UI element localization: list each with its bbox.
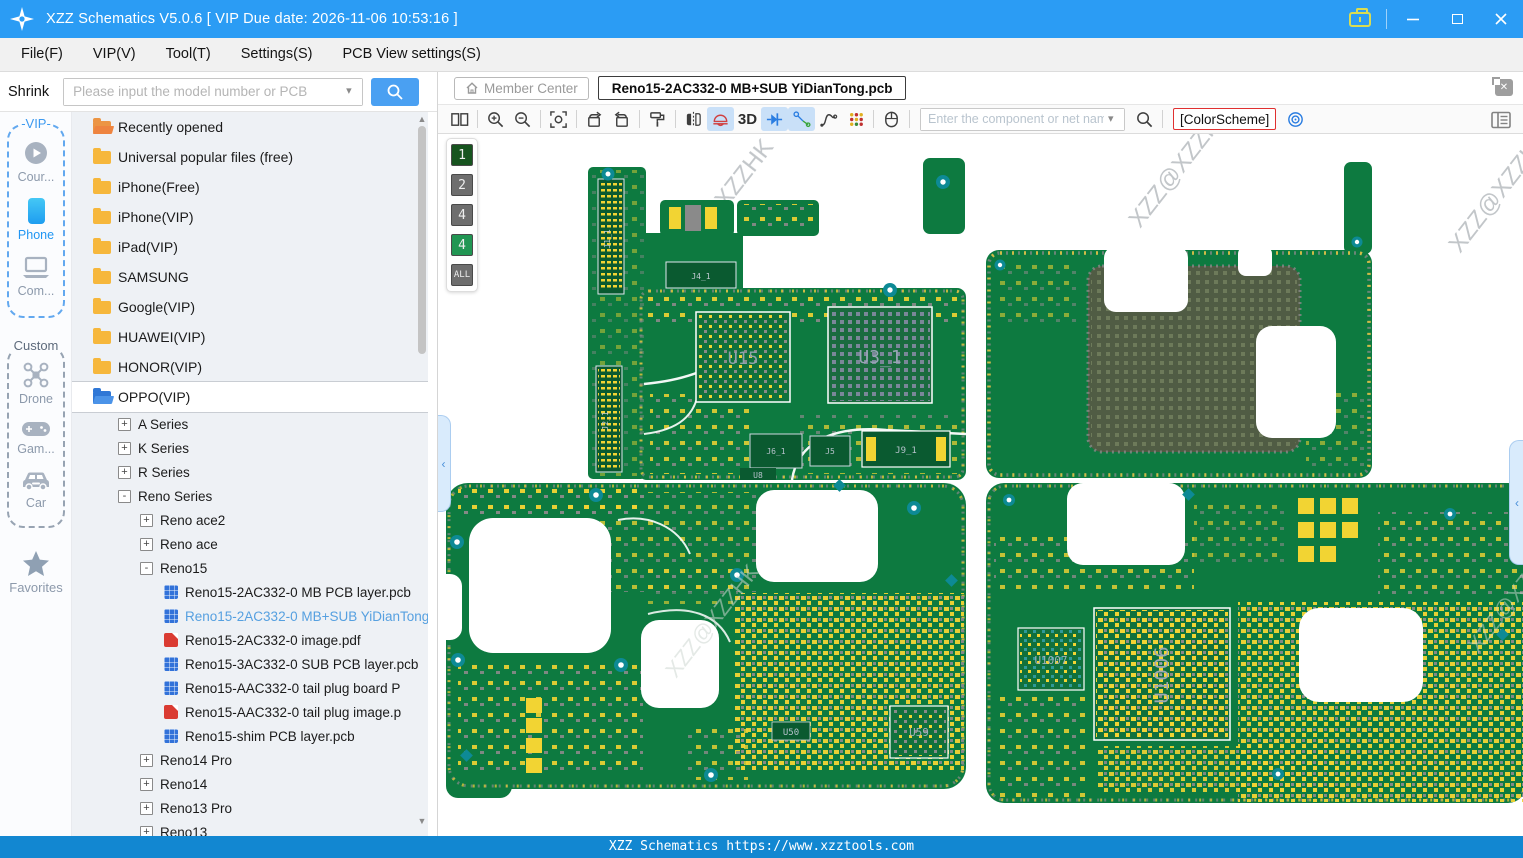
folder-icon	[93, 211, 111, 224]
tree-item-reno14[interactable]: + Reno14	[72, 772, 428, 796]
scroll-up-icon[interactable]: ▲	[417, 114, 427, 124]
bga-u1007: U1007	[1018, 628, 1084, 690]
eye-visibility-button[interactable]	[1282, 107, 1309, 131]
folder-icon	[93, 331, 111, 344]
svg-text:J2_1: J2_1	[601, 411, 610, 430]
restore-button[interactable]	[1435, 0, 1479, 38]
expand-icon[interactable]: +	[140, 538, 153, 551]
paint-roller-button[interactable]	[644, 107, 671, 131]
fit-screen-button[interactable]	[545, 107, 572, 131]
svg-text:XZZ@XZZHK: XZZ@XZZHK	[1123, 134, 1236, 233]
tree-item-a-series[interactable]: + A Series	[72, 412, 428, 436]
custom-group-box: Custom Drone Gam...	[7, 346, 65, 528]
laptop-icon	[22, 256, 50, 280]
menu-tool[interactable]: Tool(T)	[151, 38, 226, 71]
menu-pcb-view-settings[interactable]: PCB View settings(S)	[327, 38, 495, 71]
dot-matrix-button[interactable]	[842, 107, 869, 131]
pcb-toolbar: 3D ▾ [ColorScheme]	[438, 104, 1523, 134]
model-search-field: ▾	[63, 78, 363, 106]
tree-item-reno14-pro[interactable]: + Reno14 Pro	[72, 748, 428, 772]
curve-tool-button[interactable]	[815, 107, 842, 131]
tree-file-reno15-tail-plug-image[interactable]: Reno15-AAC332-0 tail plug image.p	[72, 700, 428, 724]
pcb-canvas-area[interactable]: 1 2 4 4 ALL	[438, 134, 1523, 836]
expand-icon[interactable]: +	[118, 442, 131, 455]
status-bar: XZZ Schematics https://www.xzztools.com	[0, 836, 1523, 858]
3d-view-button[interactable]: 3D	[734, 107, 761, 131]
folder-icon	[93, 361, 111, 374]
svg-text:U1007: U1007	[1034, 654, 1067, 667]
tree-item-reno13-pro[interactable]: + Reno13 Pro	[72, 796, 428, 820]
star-icon	[21, 550, 51, 578]
connector-j4-1: J4_1	[666, 262, 736, 288]
tree-item-google-vip[interactable]: Google(VIP)	[72, 292, 428, 322]
folder-open-icon	[93, 121, 111, 134]
tree-item-k-series[interactable]: + K Series	[72, 436, 428, 460]
tree-item-reno-ace[interactable]: + Reno ace	[72, 532, 428, 556]
collapse-icon[interactable]: -	[118, 490, 131, 503]
menu-settings[interactable]: Settings(S)	[226, 38, 328, 71]
connector-j5: J5	[810, 436, 850, 466]
search-row: Shrink ▾	[0, 72, 437, 112]
collapse-right-handle[interactable]: ‹	[1509, 440, 1523, 565]
silkscreen-lamp-button[interactable]	[707, 107, 734, 131]
folder-icon	[93, 271, 111, 284]
folder-icon	[93, 151, 111, 164]
tree-item-recently-opened[interactable]: Recently opened	[72, 112, 428, 142]
svg-text:U59: U59	[909, 726, 929, 739]
car-icon	[21, 470, 51, 492]
tree-file-reno15-sub-pcb[interactable]: Reno15-3AC332-0 SUB PCB layer.pcb	[72, 652, 428, 676]
net-search-button[interactable]	[1131, 107, 1158, 131]
zoom-out-button[interactable]	[509, 107, 536, 131]
shrink-button[interactable]: Shrink	[8, 84, 49, 100]
search-button[interactable]	[371, 78, 419, 106]
close-button[interactable]	[1479, 0, 1523, 38]
tree-item-universal[interactable]: Universal popular files (free)	[72, 142, 428, 172]
pcb-file-icon	[164, 609, 178, 623]
bga-u59: U59	[890, 706, 948, 758]
tree-item-reno15[interactable]: - Reno15	[72, 556, 428, 580]
expand-icon[interactable]: +	[140, 778, 153, 791]
vip-group-box: -VIP- Cour... Phone Com...	[7, 124, 65, 318]
tab-row: Member Center Reno15-2AC332-0 MB+SUB YiD…	[438, 72, 1523, 104]
expand-icon[interactable]: +	[118, 418, 131, 431]
rotate-left-button[interactable]	[581, 107, 608, 131]
chevron-down-icon[interactable]: ▾	[1108, 115, 1117, 124]
pcb-drawing[interactable]: XZZ@XZZHK XZZ@XZZHK XZZ@XZZHK XZZ@XZZHK	[438, 134, 1523, 836]
net-search-input[interactable]	[921, 109, 1124, 130]
pdf-file-icon	[164, 705, 178, 719]
rail-item-favorites[interactable]: Favorites	[0, 550, 72, 595]
layer-panel-toggle-icon[interactable]	[1491, 111, 1511, 129]
layer-button-all[interactable]: ALL	[451, 264, 473, 286]
layer-button-4[interactable]: 4	[451, 234, 473, 256]
tree-item-oppo-vip[interactable]: OPPO(VIP)	[72, 382, 428, 412]
tree-item-reno13[interactable]: + Reno13	[72, 820, 428, 836]
model-search-input[interactable]	[64, 79, 362, 105]
layer-selector: 1 2 4 4 ALL	[446, 138, 478, 292]
bga-u3-1: U3_1	[828, 307, 932, 403]
folder-open-icon	[93, 391, 111, 404]
window-title: XZZ Schematics V5.0.6 [ VIP Due date: 20…	[46, 11, 458, 27]
svg-text:J4_1: J4_1	[691, 272, 710, 281]
rotate-right-button[interactable]	[608, 107, 635, 131]
titlebar-separator	[1386, 9, 1387, 29]
rail-item-course[interactable]: Cour...	[9, 140, 63, 184]
file-tree: Recently opened Universal popular files …	[72, 112, 428, 836]
svg-text:U50: U50	[783, 728, 799, 738]
folder-icon	[93, 241, 111, 254]
pdf-file-icon	[164, 633, 178, 647]
svg-text:U3_1: U3_1	[858, 347, 901, 368]
layer-button-3[interactable]: 4	[451, 204, 473, 226]
pcb-board-top-right[interactable]	[986, 162, 1372, 478]
pcb-board-bottom-right[interactable]: U1007 U1006 XZZ@XZZHK	[986, 483, 1523, 803]
tree-file-reno15-image-pdf[interactable]: Reno15-2AC332-0 image.pdf	[72, 628, 428, 652]
menu-file[interactable]: File(F)	[6, 38, 78, 71]
svg-text:XZZ@XZZHK: XZZ@XZZHK	[1443, 134, 1523, 258]
zoom-in-button[interactable]	[482, 107, 509, 131]
menu-vip[interactable]: VIP(V)	[78, 38, 151, 71]
measure-button[interactable]	[788, 107, 815, 131]
tree-item-r-series[interactable]: + R Series	[72, 460, 428, 484]
search-icon	[386, 83, 404, 101]
pcb-board-top-left[interactable]: J1_1 J2_1 J4_1 U15 U3_1	[588, 158, 966, 480]
bga-u1006: U1006	[1094, 608, 1230, 740]
tree-scrollbar[interactable]: ▲ ▼	[417, 114, 427, 834]
drone-icon	[23, 362, 49, 388]
net-search-field: ▾	[920, 108, 1125, 131]
member-center-button[interactable]: Member Center	[454, 77, 589, 100]
vip-group-label: -VIP-	[19, 116, 53, 131]
layer-button-2[interactable]: 2	[451, 174, 473, 196]
title-bar: XZZ Schematics V5.0.6 [ VIP Due date: 20…	[0, 0, 1523, 38]
diode-mode-button[interactable]	[761, 107, 788, 131]
expand-icon[interactable]: +	[140, 826, 153, 837]
svg-text:J9_1: J9_1	[895, 446, 917, 456]
rail-item-phone[interactable]: Phone	[9, 198, 63, 242]
menu-bar: File(F) VIP(V) Tool(T) Settings(S) PCB V…	[0, 38, 1523, 72]
pcb-board-bottom-left[interactable]: U50 U59	[438, 479, 966, 798]
tree-file-reno15-shim[interactable]: Reno15-shim PCB layer.pcb	[72, 724, 428, 748]
scroll-down-icon[interactable]: ▼	[417, 816, 427, 826]
scrollbar-thumb[interactable]	[418, 126, 426, 354]
tree-item-samsung[interactable]: SAMSUNG	[72, 262, 428, 292]
play-circle-icon	[23, 140, 49, 166]
tree-item-reno-series[interactable]: - Reno Series	[72, 484, 428, 508]
expand-icon[interactable]: +	[140, 754, 153, 767]
flip-horizontal-button[interactable]	[680, 107, 707, 131]
status-text: XZZ Schematics https://www.xzztools.com	[609, 839, 914, 854]
pcb-file-icon	[164, 729, 178, 743]
minimize-button[interactable]	[1391, 0, 1435, 38]
tree-item-iphone-free[interactable]: iPhone(Free)	[72, 172, 428, 202]
home-icon	[465, 81, 479, 95]
rail-item-car[interactable]: Car	[9, 470, 63, 510]
custom-group-label: Custom	[12, 338, 61, 353]
split-view-button[interactable]	[446, 107, 473, 131]
component-u50: U50	[772, 722, 810, 740]
chevron-down-icon[interactable]: ▾	[346, 87, 355, 96]
bga-u15: U15	[696, 312, 790, 402]
tree-item-reno-ace2[interactable]: + Reno ace2	[72, 508, 428, 532]
color-scheme-button[interactable]: [ColorScheme]	[1173, 108, 1276, 130]
pcb-file-icon	[164, 681, 178, 695]
tree-item-honor-vip[interactable]: HONOR(VIP)	[72, 352, 428, 382]
rail-item-game[interactable]: Gam...	[9, 420, 63, 456]
connector-j9-1: J9_1	[862, 431, 950, 467]
rail-item-drone[interactable]: Drone	[9, 362, 63, 406]
tree-file-reno15-mb-sub-active[interactable]: Reno15-2AC332-0 MB+SUB YiDianTong.pcb	[72, 604, 428, 628]
svg-text:U8: U8	[753, 471, 763, 480]
svg-text:J1_1: J1_1	[603, 229, 612, 248]
connector-j1-1: J1_1	[598, 179, 624, 294]
pcb-file-icon	[164, 657, 178, 671]
folder-icon	[93, 301, 111, 314]
folder-icon	[93, 181, 111, 194]
tree-item-huawei-vip[interactable]: HUAWEI(VIP)	[72, 322, 428, 352]
collapse-icon[interactable]: -	[140, 562, 153, 575]
close-tab-icon[interactable]: ✕	[1495, 79, 1513, 96]
svg-text:U1006: U1006	[1151, 646, 1173, 703]
expand-icon[interactable]: +	[140, 802, 153, 815]
connector-j2-1: J2_1	[596, 366, 622, 472]
svg-text:J5: J5	[825, 447, 835, 456]
svg-text:J6_1: J6_1	[766, 447, 785, 456]
rail-item-computer[interactable]: Com...	[9, 256, 63, 298]
category-rail: -VIP- Cour... Phone Com... Custom	[0, 112, 72, 836]
tree-file-reno15-mb-pcb[interactable]: Reno15-2AC332-0 MB PCB layer.pcb	[72, 580, 428, 604]
layer-button-1[interactable]: 1	[451, 144, 473, 166]
tree-item-ipad-vip[interactable]: iPad(VIP)	[72, 232, 428, 262]
expand-icon[interactable]: +	[140, 514, 153, 527]
app-logo-icon	[10, 7, 34, 31]
tree-file-reno15-tail-plug-board[interactable]: Reno15-AAC332-0 tail plug board P	[72, 676, 428, 700]
collapse-tree-handle[interactable]: ‹	[438, 415, 451, 512]
phone-icon	[28, 198, 45, 224]
expand-icon[interactable]: +	[118, 466, 131, 479]
mouse-settings-button[interactable]	[878, 107, 905, 131]
open-pcb-tab[interactable]: Reno15-2AC332-0 MB+SUB YiDianTong.pcb	[598, 76, 907, 100]
svg-text:U15: U15	[728, 349, 759, 369]
gamepad-icon	[21, 420, 51, 438]
tree-item-iphone-vip[interactable]: iPhone(VIP)	[72, 202, 428, 232]
connector-j6-1: J6_1	[750, 434, 802, 468]
pcb-file-icon	[164, 585, 178, 599]
component-u8: U8	[740, 468, 776, 480]
license-briefcase-icon[interactable]	[1338, 0, 1382, 38]
